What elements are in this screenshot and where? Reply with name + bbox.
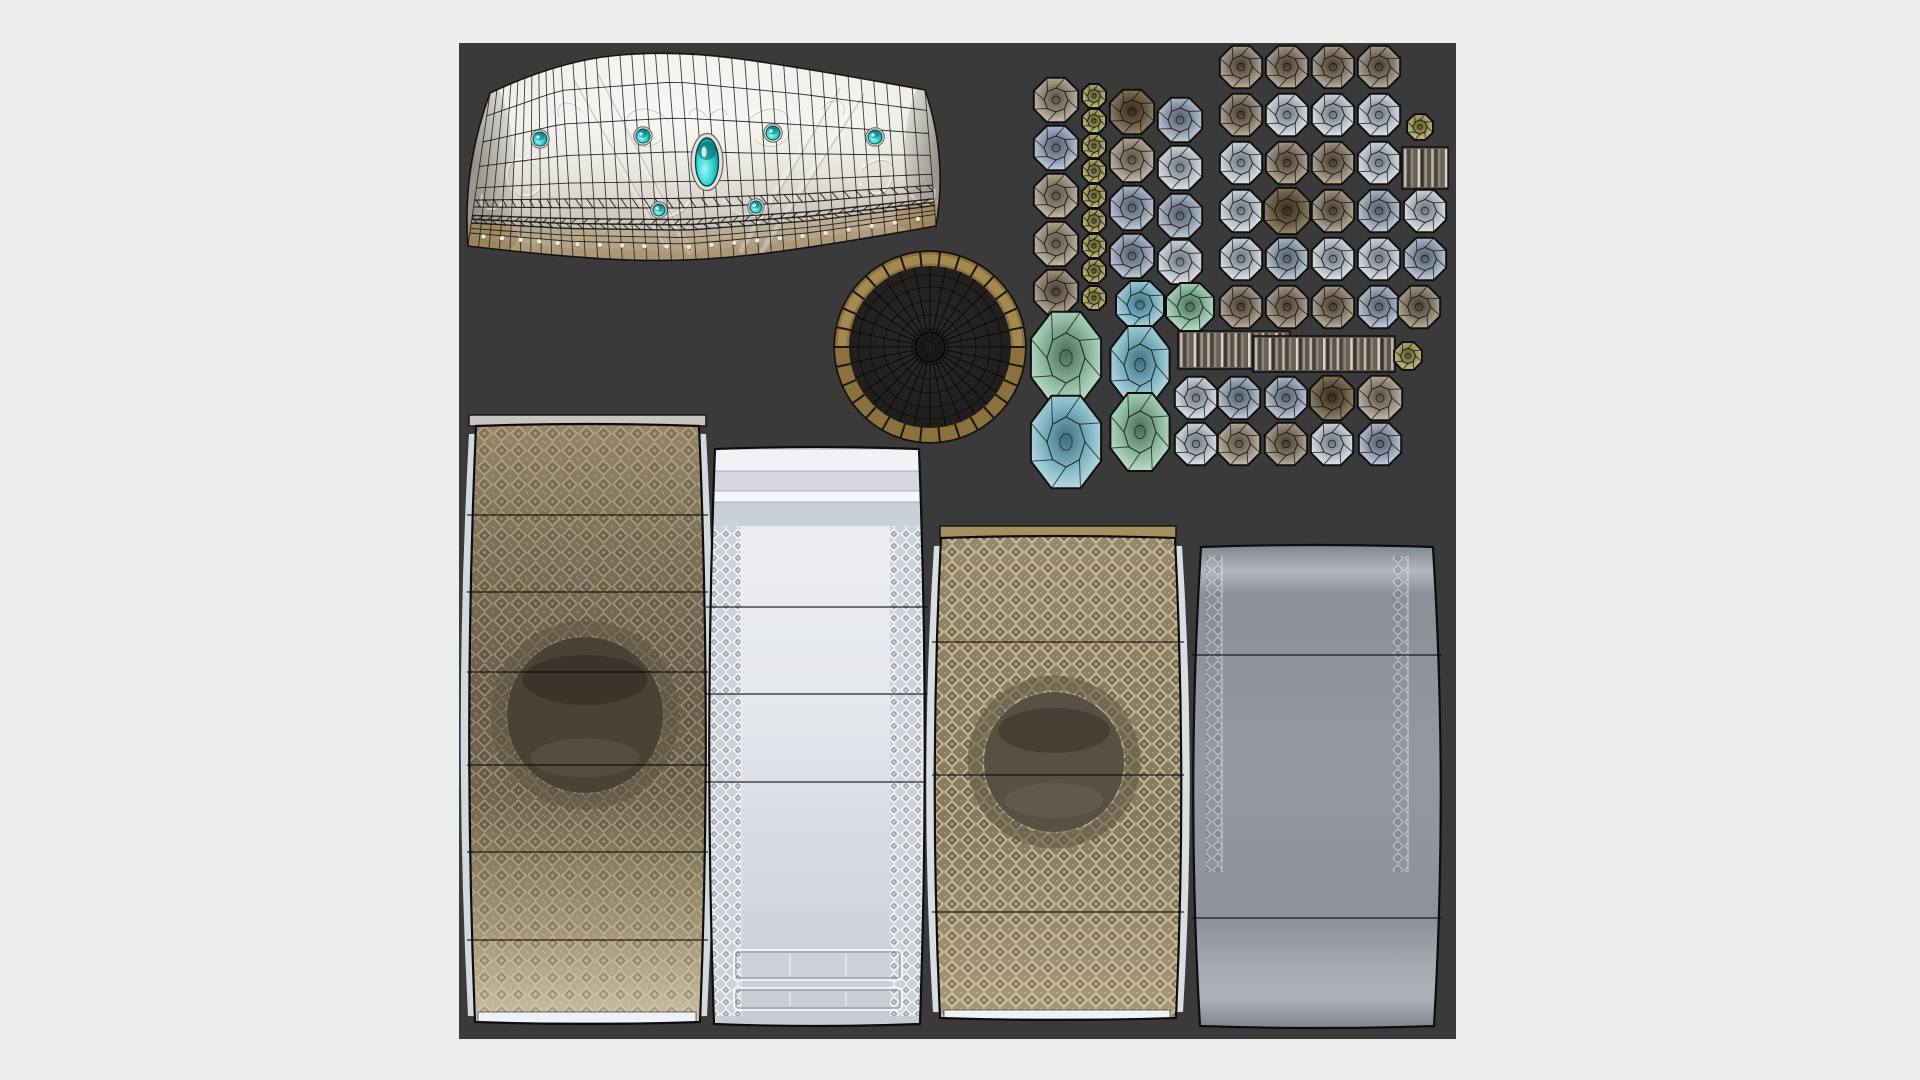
- panel-steel-cuff-inner: [1192, 545, 1442, 1028]
- octagon-gem: [1358, 46, 1400, 88]
- panel-bottom-strip: [944, 1010, 1170, 1019]
- octagon-gem: [1082, 286, 1106, 310]
- octagon-gem: [1220, 286, 1262, 328]
- octagon-gem: [1266, 142, 1308, 184]
- octagon-gem: [1110, 234, 1154, 278]
- octagon-gem: [1358, 286, 1400, 328]
- octagon-gem: [1312, 46, 1354, 88]
- octagon-gem: [1220, 190, 1262, 232]
- octagon-gem: [1312, 94, 1354, 136]
- octagon-gem: [1166, 283, 1214, 331]
- octagon-gem: [1110, 186, 1154, 230]
- octagon-gem: [1110, 90, 1154, 134]
- octagon-gem: [1404, 238, 1446, 280]
- octagon-gem: [1218, 423, 1260, 465]
- octagon-gem: [1175, 423, 1217, 465]
- octagon-gem: [1220, 46, 1262, 88]
- octagon-gem: [1220, 142, 1262, 184]
- octagon-gem: [1358, 238, 1400, 280]
- octagon-gem: [1358, 142, 1400, 184]
- octagon-gem: [1358, 94, 1400, 136]
- octagon-gem: [1311, 423, 1353, 465]
- octagon-gem: [1310, 376, 1354, 420]
- octagon-gem: [1034, 270, 1078, 314]
- octagon-gem: [1266, 94, 1308, 136]
- octagon-gem: [1034, 222, 1078, 266]
- octagon-gem: [1312, 190, 1354, 232]
- octagon-gem: [1218, 377, 1260, 419]
- panel-silver-cuff-outer: [702, 447, 932, 1026]
- octagon-gem: [1359, 423, 1401, 465]
- octagon-gem: [1358, 376, 1402, 420]
- octagon-gem: [1158, 98, 1202, 142]
- octagon-gem: [1220, 238, 1262, 280]
- octagon-gem: [1358, 190, 1400, 232]
- octagon-gem: [1265, 423, 1307, 465]
- octagon-gem: [1175, 377, 1217, 419]
- panel-detail: [463, 421, 712, 1027]
- octagon-gem: [1394, 342, 1422, 370]
- octagon-gem: [1266, 46, 1308, 88]
- octagon-gem: [1158, 240, 1202, 284]
- octagon-gem: [1265, 377, 1307, 419]
- octagon-gem: [1082, 259, 1106, 283]
- octagon-gem: [1110, 138, 1154, 182]
- octagon-gem: [1407, 114, 1433, 140]
- panel-bronze-cuff-outer: [461, 415, 715, 1027]
- octagon-gem: [1034, 126, 1078, 170]
- octagon-gem: [1082, 234, 1106, 258]
- octagon-gem: [1082, 159, 1106, 183]
- octagon-gem: [1116, 281, 1164, 329]
- octagon-gem: [1312, 286, 1354, 328]
- octagon-gem: [1082, 209, 1106, 233]
- gem-octagon-field: [1031, 46, 1448, 489]
- octagon-gem: [1031, 312, 1101, 405]
- octagon-gem: [1110, 393, 1169, 471]
- octagon-gem: [1082, 109, 1106, 133]
- octagon-gem: [1082, 84, 1106, 108]
- octagon-gem: [1034, 174, 1078, 218]
- octagon-gem: [1082, 134, 1106, 158]
- octagon-gem: [1158, 194, 1202, 238]
- octagon-gem: [1220, 94, 1262, 136]
- octagon-gem: [1398, 286, 1440, 328]
- octagon-gem: [1266, 238, 1308, 280]
- octagon-gem: [1312, 142, 1354, 184]
- octagon-gem: [1266, 286, 1308, 328]
- octagon-gem: [1404, 190, 1446, 232]
- octagon-gem: [1031, 396, 1101, 489]
- octagon-gem: [1312, 238, 1354, 280]
- octagon-gem: [1158, 146, 1202, 190]
- panel-bottom-strip: [478, 1012, 696, 1023]
- panel-detail: [928, 533, 1188, 1023]
- octagon-gem: [1082, 184, 1106, 208]
- panel-khaki-cuff-inner: [926, 526, 1190, 1023]
- texture-atlas-scene: [0, 0, 1920, 1080]
- wheel-disc-island: [834, 251, 1026, 443]
- octagon-gem: [1264, 188, 1310, 234]
- texture-atlas-viewport: [0, 0, 1920, 1080]
- octagon-gem: [1034, 78, 1078, 122]
